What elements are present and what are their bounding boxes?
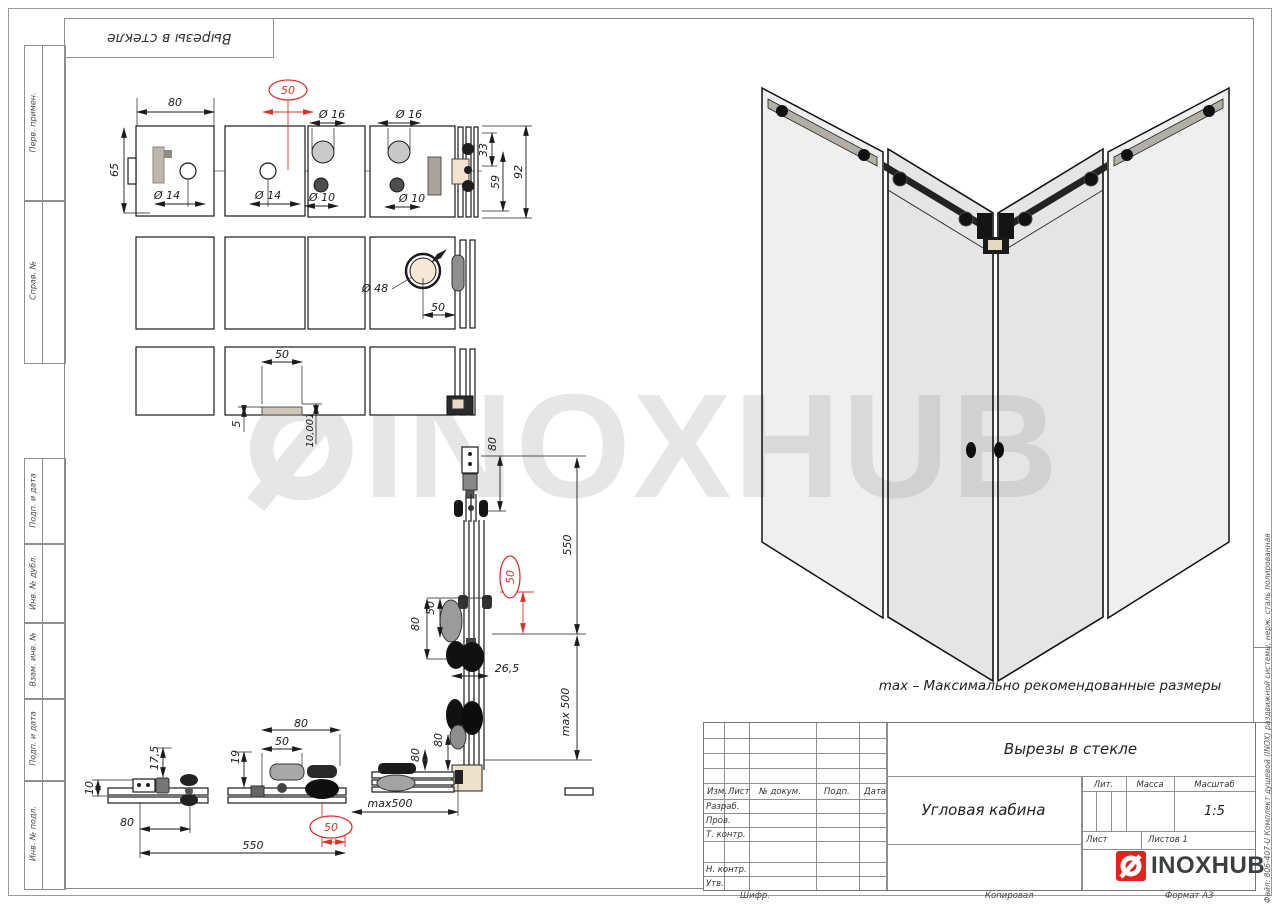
margin-cell-sprav-no: Справ. № <box>24 200 66 364</box>
inoxhub-logo-icon <box>1116 851 1146 881</box>
tb-doc-name: Угловая кабина <box>886 801 1081 819</box>
tb-listov-label: Листов 1 <box>1148 835 1188 845</box>
repeat-stamp: Вырезы в стекле <box>64 18 274 58</box>
brand-name: INOXHUB <box>1151 852 1265 880</box>
tb-role-razrab: Разраб. <box>706 802 739 812</box>
tb-list-label: Лист <box>1086 835 1108 845</box>
margin-label: Взам. инв. № <box>29 620 38 700</box>
tb-role-utv: Утв. <box>706 879 724 889</box>
tb-role-tkontr: Т. контр. <box>706 830 746 840</box>
margin-cell-vzam-inv: Взам. инв. № <box>24 622 66 700</box>
footer-shifr: Шифр. <box>740 891 770 901</box>
tb-role-prov: Пров. <box>706 816 731 826</box>
tb-title: Вырезы в стекле <box>886 740 1255 758</box>
repeat-stamp-title: Вырезы в стекле <box>107 30 231 46</box>
tb-col-data: Дата <box>864 787 886 797</box>
footer-format: Формат А3 <box>1165 891 1213 901</box>
tb-col-docnum: № докум. <box>759 787 801 797</box>
margin-label: Справ. № <box>29 241 38 321</box>
margin-label: Инв. № подл. <box>29 794 38 874</box>
footer-kopiroval: Копировал <box>985 891 1034 901</box>
tb-massa-label: Масса <box>1126 780 1174 790</box>
margin-cell-inv-podl: Инв. № подл. <box>24 780 66 890</box>
margin-label: Инв. № дубл. <box>29 542 38 622</box>
tb-col-izm: Изм. <box>707 787 727 797</box>
tb-masshtab-value: 1:5 <box>1174 804 1255 819</box>
brand-logo: INOXHUB <box>1116 851 1265 881</box>
tb-col-list: Лист <box>728 787 750 797</box>
tb-masshtab-label: Масштаб <box>1174 780 1255 790</box>
margin-cell-perv-primen: Перв. примен. <box>24 45 66 202</box>
tb-role-nkontr: Н. контр. <box>706 865 747 875</box>
margin-label: Подп. и дата <box>29 699 38 779</box>
max-size-note: max – Максимально рекомендованные размер… <box>860 678 1240 694</box>
margin-label: Перв. примен. <box>29 82 38 162</box>
margin-cell-inv-dubl: Инв. № дубл. <box>24 543 66 624</box>
margin-label: Подп. и дата <box>29 460 38 540</box>
margin-cell-podp-data-1: Подп. и дата <box>24 458 66 545</box>
title-block: Изм. Лист № докум. Подп. Дата Разраб. Пр… <box>703 722 1256 891</box>
margin-cell-podp-data-2: Подп. и дата <box>24 698 66 782</box>
drawing-sheet: INOXHUB <box>0 0 1280 905</box>
tb-lit-label: Лит. <box>1081 780 1126 790</box>
tb-col-podp: Подп. <box>824 787 850 797</box>
